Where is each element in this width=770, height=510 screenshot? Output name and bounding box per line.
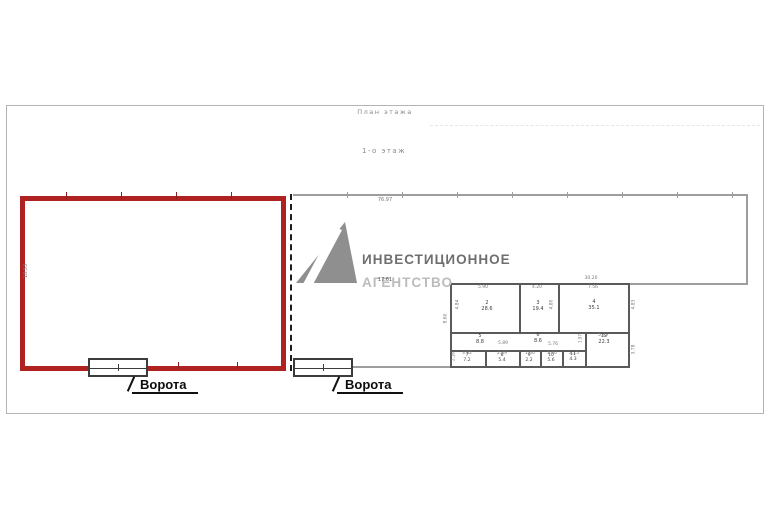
dim-tick xyxy=(512,192,513,198)
gate-1-label: Ворота xyxy=(140,377,186,392)
gate-2 xyxy=(293,358,353,377)
room-label-7: 77.2 xyxy=(455,353,479,363)
dim-tick xyxy=(176,192,177,199)
dim-tick xyxy=(237,362,238,369)
center-dim: 17.61 xyxy=(370,277,400,283)
dim-tick xyxy=(622,192,623,198)
room-label-2: 228.6 xyxy=(469,300,505,312)
dim-room2-width: 5.90 xyxy=(468,285,498,290)
room-label-9: 92.2 xyxy=(517,353,541,363)
plan-title-bar: План этажа xyxy=(6,105,764,119)
room-label-12: 1222.3 xyxy=(586,333,622,345)
zone-boundary-dashed-line xyxy=(290,194,292,371)
overall-width-dim: 76.97 xyxy=(370,197,400,203)
gate-label-underline xyxy=(337,392,403,394)
dim-v-197: 1.97 xyxy=(578,328,583,350)
a1-logo-icon xyxy=(294,220,358,286)
dim-tick xyxy=(231,192,232,199)
dim-tick xyxy=(178,362,179,369)
floor-label: 1-о этаж xyxy=(362,147,406,155)
dim-tick xyxy=(66,192,67,199)
watermark-line1: ИНВЕСТИЦИОННОЕ xyxy=(362,252,511,267)
room-label-11: 114.3 xyxy=(561,352,585,362)
gate-1 xyxy=(88,358,148,377)
room-label-5: 58.8 xyxy=(462,333,498,345)
dim-v-860: 8.60 xyxy=(444,308,449,330)
dim-tick xyxy=(347,192,348,198)
plan-title: План этажа xyxy=(357,108,413,116)
dim-tick xyxy=(567,192,568,198)
gate-center-tick xyxy=(323,364,324,371)
dim-tick xyxy=(732,192,733,198)
scan-artifact-line xyxy=(430,125,760,126)
wall-top xyxy=(293,194,748,196)
wall-right xyxy=(746,194,748,285)
room-label-6: 68.6 xyxy=(520,332,556,344)
dim-tick xyxy=(457,192,458,198)
dim-room4-width: 7.56 xyxy=(578,285,608,290)
gate-2-label: Ворота xyxy=(345,377,391,392)
wall-mid xyxy=(630,283,748,285)
inner-wall xyxy=(558,283,560,332)
gate-center-tick xyxy=(118,364,119,371)
room-label-8: 85.4 xyxy=(490,353,514,363)
block-width-dim: 30.20 xyxy=(576,276,606,281)
left-zone-height-dim: 18.53 xyxy=(23,260,29,282)
dim-tick xyxy=(402,192,403,198)
dim-tick xyxy=(121,192,122,199)
highlighted-area-outline xyxy=(20,196,286,371)
dim-v-484: 4.84 xyxy=(456,294,461,316)
room-label-3: 319.4 xyxy=(520,300,556,312)
gate-label-underline xyxy=(132,392,198,394)
dim-v-483: 4.83 xyxy=(632,294,637,316)
floor-plan-page: План этажа 1-о этаж 18.53 76.97 ИНВЕСТИЦ… xyxy=(0,0,770,510)
dim-room3-width: 4.20 xyxy=(522,285,552,290)
dim-v-378: 3.78 xyxy=(632,339,637,361)
dim-tick xyxy=(677,192,678,198)
room-label-4: 435.1 xyxy=(576,299,612,311)
room-label-10: 105.6 xyxy=(539,353,563,363)
